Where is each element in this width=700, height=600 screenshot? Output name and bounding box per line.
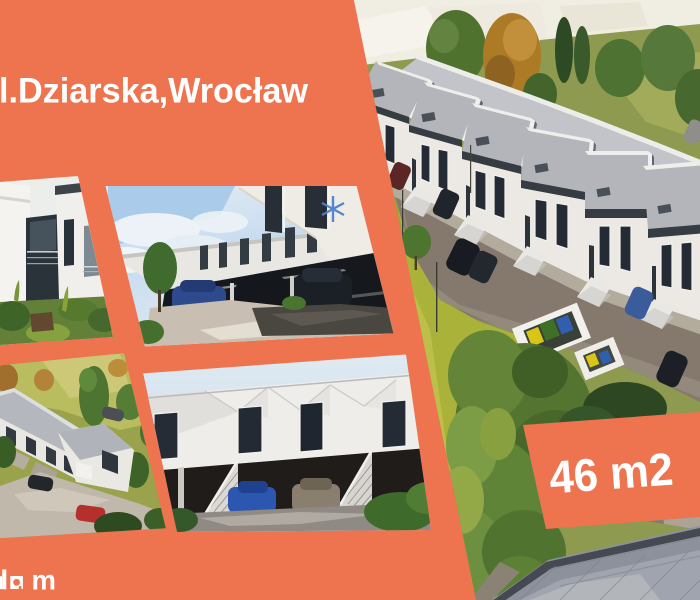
svg-text:l.Dziarska,Wrocław: l.Dziarska,Wrocław: [0, 72, 309, 111]
svg-text:46 m2: 46 m2: [547, 443, 674, 504]
svg-text:m: m: [32, 564, 56, 595]
